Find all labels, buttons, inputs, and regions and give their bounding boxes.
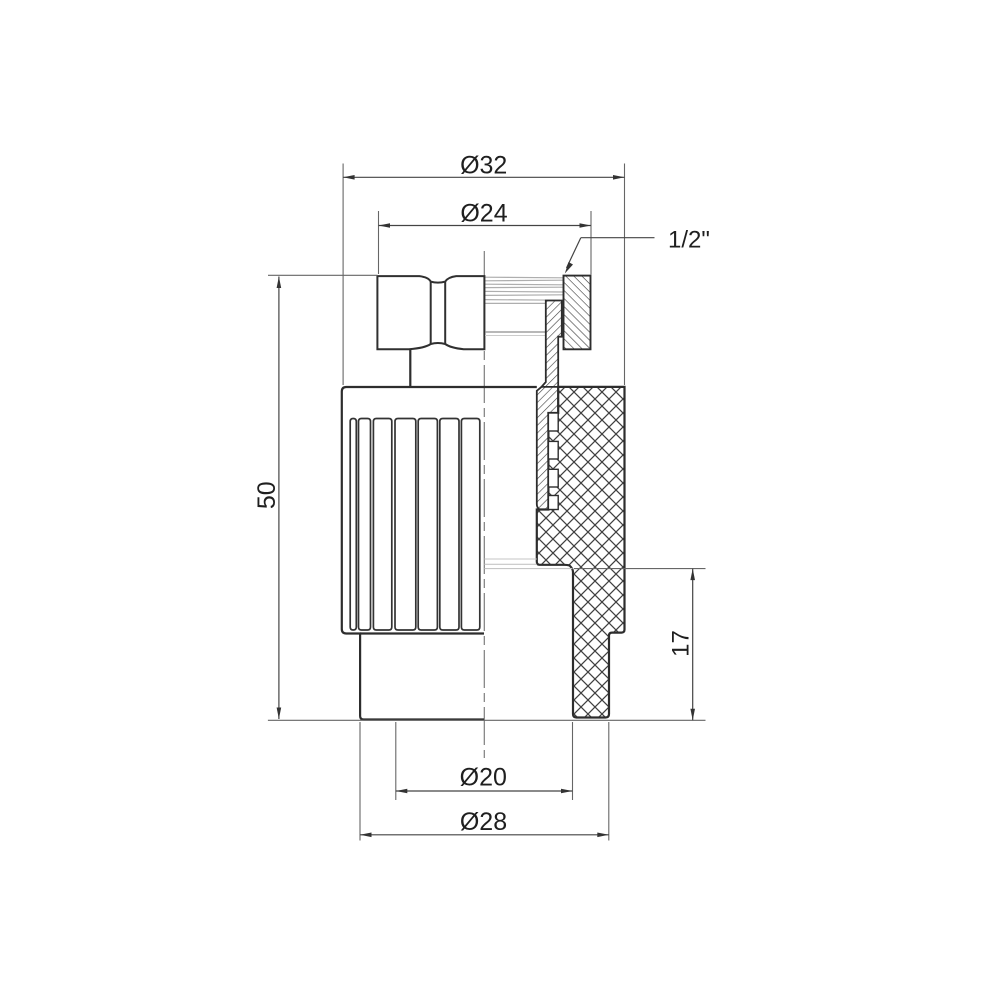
svg-text:1/2": 1/2" bbox=[668, 227, 710, 254]
svg-text:Ø20: Ø20 bbox=[460, 764, 507, 792]
svg-text:Ø24: Ø24 bbox=[460, 199, 507, 227]
svg-text:50: 50 bbox=[253, 481, 281, 509]
svg-text:Ø32: Ø32 bbox=[460, 151, 507, 179]
svg-text:17: 17 bbox=[668, 630, 695, 657]
svg-text:Ø28: Ø28 bbox=[460, 808, 507, 836]
